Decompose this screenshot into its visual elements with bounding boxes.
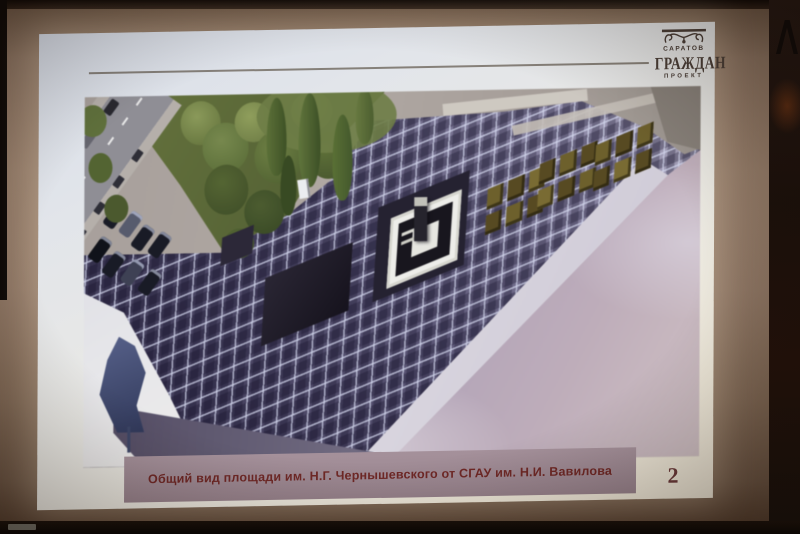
wrought-iron-ornament-icon [659,28,709,45]
logo-name-text: ГРАЖДАН [655,53,713,74]
monument-statue [414,197,427,241]
conifer-tree [356,88,374,144]
site-plan-3d-render [83,86,701,467]
caption-text: Общий вид площади им. Н.Г. Чернышевского… [148,464,612,487]
room-dark-top-band [0,0,800,9]
blue-shadow-drip [127,427,130,453]
header-rule-line [89,62,649,74]
photo-of-projected-slide: САРАТОВ ГРАЖДАН ПРОЕКТ [0,0,800,534]
company-logo: САРАТОВ ГРАЖДАН ПРОЕКТ [655,28,713,83]
white-kiosk [297,179,310,200]
room-dark-left-edge [0,0,7,300]
caption-bar: Общий вид площади им. Н.Г. Чернышевского… [124,447,636,502]
room-dark-bottom-band [0,521,800,534]
presentation-slide: САРАТОВ ГРАЖДАН ПРОЕКТ [37,22,715,511]
conifer-tree [280,155,296,215]
car [137,268,163,297]
page-number: 2 [653,462,693,489]
warm-light-glow [768,78,800,134]
table-edge-highlight [8,524,36,530]
